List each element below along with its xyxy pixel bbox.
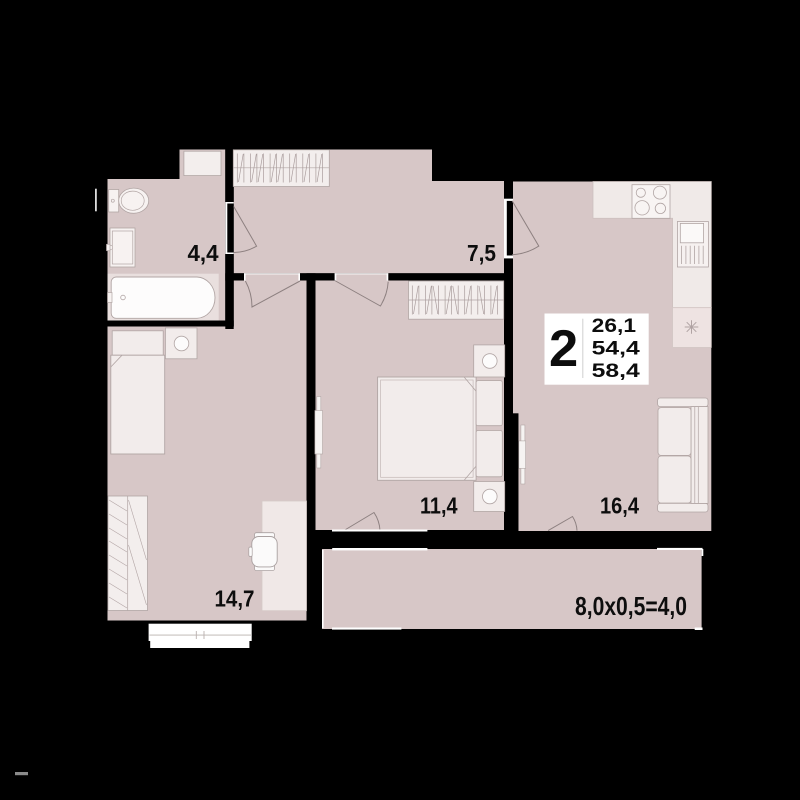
svg-text:8,0x0,5=4,0: 8,0x0,5=4,0 <box>575 591 687 621</box>
svg-text:16,4: 16,4 <box>600 493 639 519</box>
svg-text:26,1: 26,1 <box>592 316 637 337</box>
svg-text:4,4: 4,4 <box>188 240 219 266</box>
svg-text:54,4: 54,4 <box>592 339 641 360</box>
svg-text:14,7: 14,7 <box>215 586 255 612</box>
svg-text:11,4: 11,4 <box>420 493 458 519</box>
svg-text:58,4: 58,4 <box>592 361 641 382</box>
svg-text:7,5: 7,5 <box>467 240 496 266</box>
svg-text:2: 2 <box>549 320 578 378</box>
